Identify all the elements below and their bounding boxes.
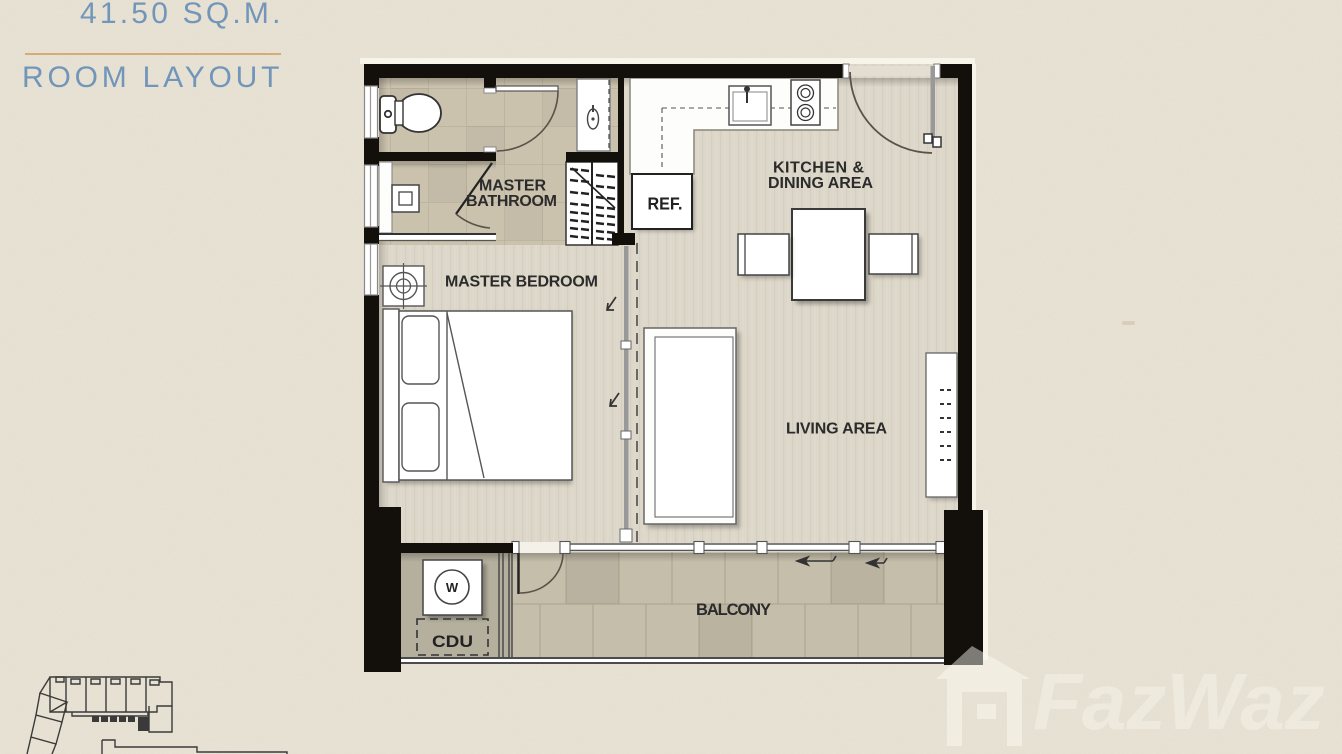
svg-text:REF.: REF.: [648, 194, 683, 214]
svg-text:KITCHEN &: KITCHEN &: [773, 160, 864, 177]
svg-text:CDU: CDU: [432, 633, 473, 651]
svg-text:MASTER BEDROOM: MASTER BEDROOM: [445, 274, 598, 291]
svg-text:FazWaz: FazWaz: [1033, 657, 1325, 746]
svg-text:W: W: [446, 580, 459, 595]
svg-text:BATHROOM: BATHROOM: [466, 193, 557, 210]
svg-text:MASTER: MASTER: [479, 178, 546, 195]
svg-text:DINING AREA: DINING AREA: [768, 175, 873, 192]
svg-text:BALCONY: BALCONY: [696, 601, 771, 619]
svg-text:LIVING AREA: LIVING AREA: [786, 421, 887, 438]
